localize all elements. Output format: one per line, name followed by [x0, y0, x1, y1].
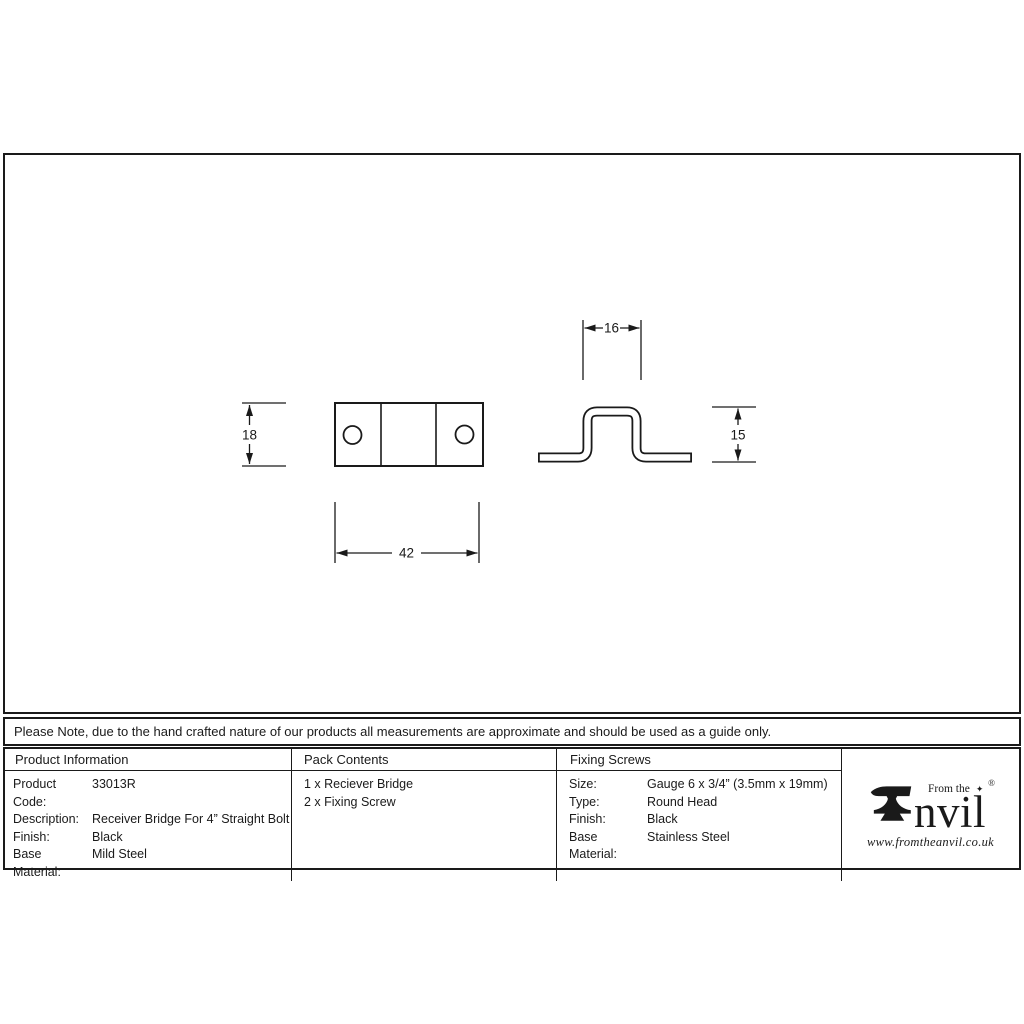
row-label: Finish: — [557, 811, 647, 829]
anvil-icon — [869, 780, 913, 828]
registered-mark: ® — [988, 778, 995, 788]
logo-main: From the✦ ® nvil — [869, 780, 992, 829]
logo-website: www.fromtheanvil.co.uk — [867, 835, 994, 850]
row-value: Round Head — [647, 794, 717, 812]
row-label: Base Material: — [5, 846, 92, 881]
row-value: Receiver Bridge For 4” Straight Bolt — [92, 811, 289, 829]
plan-view — [335, 403, 483, 466]
pack-item: 2 x Fixing Screw — [292, 794, 556, 812]
row-value: Mild Steel — [92, 846, 147, 881]
row-label: Type: — [557, 794, 647, 812]
row-value: Black — [647, 811, 678, 829]
dimension-label-42: 42 — [399, 546, 414, 561]
row-value: 33013R — [92, 776, 136, 811]
dimension-plan-height: 18 — [242, 403, 286, 466]
row-label: Description: — [5, 811, 92, 829]
dimension-plan-width: 42 — [335, 502, 479, 563]
header-fixing-screws: Fixing Screws — [557, 749, 842, 771]
plan-hole-left — [344, 426, 362, 444]
row-label: Product Code: — [5, 776, 92, 811]
technical-drawing-svg: 18 42 16 — [5, 155, 1019, 712]
table-row: Type: Round Head — [557, 794, 841, 812]
logo-wordmark: From the✦ ® nvil — [914, 784, 992, 829]
note-text: Please Note, due to the hand crafted nat… — [14, 724, 771, 739]
technical-drawing-area: 18 42 16 — [3, 153, 1021, 714]
row-label: Finish: — [5, 829, 92, 847]
row-value: Gauge 6 x 3/4” (3.5mm x 19mm) — [647, 776, 828, 794]
dimension-profile-top-width: 16 — [583, 320, 641, 380]
row-value: Black — [92, 829, 123, 847]
table-row: Base Material: Mild Steel — [5, 846, 291, 881]
logo-brand-text: nvil — [914, 795, 986, 829]
dimension-label-15: 15 — [730, 428, 745, 443]
header-pack-contents: Pack Contents — [292, 749, 557, 771]
pack-item: 1 x Reciever Bridge — [292, 776, 556, 794]
table-row: Base Material: Stainless Steel — [557, 829, 841, 864]
dimension-profile-height: 15 — [712, 407, 756, 462]
dimension-label-18: 18 — [242, 428, 257, 443]
table-row: Finish: Black — [557, 811, 841, 829]
spec-table: Product Information Pack Contents Fixing… — [3, 747, 1021, 870]
table-row: Size: Gauge 6 x 3/4” (3.5mm x 19mm) — [557, 776, 841, 794]
row-value: Stainless Steel — [647, 829, 730, 864]
dimension-label-16: 16 — [604, 321, 619, 336]
note-bar: Please Note, due to the hand crafted nat… — [3, 717, 1021, 746]
bridge-profile-inner — [540, 412, 690, 458]
bridge-profile-outer — [538, 412, 692, 458]
fixing-screws-cell: Size: Gauge 6 x 3/4” (3.5mm x 19mm) Type… — [557, 771, 842, 881]
row-label: Size: — [557, 776, 647, 794]
pack-contents-cell: 1 x Reciever Bridge 2 x Fixing Screw — [292, 771, 557, 881]
table-row: Description: Receiver Bridge For 4” Stra… — [5, 811, 291, 829]
header-product-information: Product Information — [5, 749, 292, 771]
datasheet-page: 18 42 16 — [0, 0, 1024, 1024]
plan-hole-right — [456, 426, 474, 444]
table-row: Finish: Black — [5, 829, 291, 847]
table-row: Product Code: 33013R — [5, 776, 291, 811]
brand-logo: From the✦ ® nvil www.fromtheanvil.co.uk — [842, 749, 1019, 881]
profile-view — [538, 412, 692, 458]
product-information-cell: Product Code: 33013R Description: Receiv… — [5, 771, 292, 881]
row-label: Base Material: — [557, 829, 647, 864]
